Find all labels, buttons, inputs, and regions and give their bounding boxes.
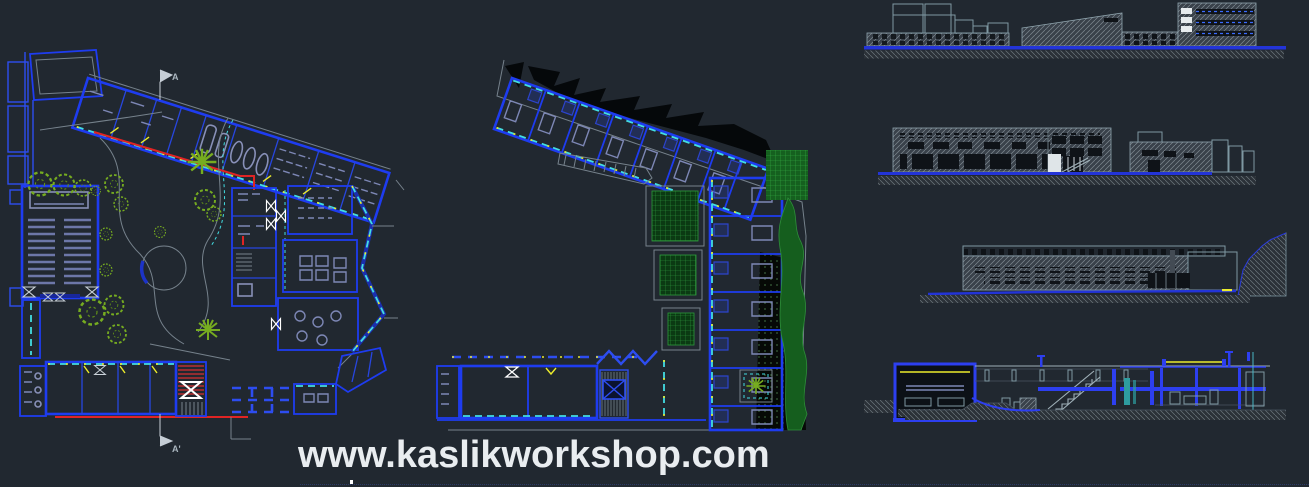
elevation-1 [864, 3, 1286, 59]
elevations [864, 3, 1286, 422]
cad-sheet: A A' [0, 0, 1309, 487]
ground-line-1 [864, 46, 1286, 50]
roof-posts [985, 370, 1128, 381]
section-label-bottom: A' [172, 444, 181, 454]
bottom-dotted-line [300, 484, 1309, 485]
stair-red [176, 362, 206, 416]
east-classrooms [272, 180, 405, 368]
tower-outlines [893, 4, 1008, 33]
section-label-top: A [172, 72, 179, 82]
hillside [1238, 233, 1286, 296]
bottom-dot [350, 480, 353, 484]
service-wing [437, 357, 706, 420]
south-rooms [46, 362, 248, 417]
section-marker-a-prime: A' [160, 414, 181, 454]
watermark: www.kaslikworkshop.com [298, 436, 770, 474]
west-corridor [20, 293, 65, 416]
upper-floor-plan [437, 60, 808, 430]
ground-line-3 [928, 291, 1236, 294]
core-rooms [232, 188, 285, 306]
ground-floor-plan: A A' [8, 50, 404, 454]
entrance-door [1048, 154, 1061, 172]
canopy-zigzag [597, 351, 657, 364]
round-tables [295, 311, 341, 345]
section-stairs [1050, 379, 1092, 414]
se-connector [336, 348, 386, 392]
ground-line-2 [878, 172, 1212, 175]
se-rooms [294, 384, 336, 414]
roof-garden [766, 150, 808, 200]
section-a [864, 351, 1286, 422]
seat-rows [28, 220, 92, 283]
balcony-white [1181, 8, 1192, 14]
section-marker-a: A [160, 70, 179, 100]
auditorium [22, 186, 98, 298]
interior-fixtures [1170, 390, 1218, 404]
elevation-3 [920, 233, 1286, 303]
palm-tree [188, 149, 217, 174]
cad-canvas: A A' [0, 0, 1309, 487]
elevation-2 [878, 128, 1256, 185]
trees [29, 149, 222, 343]
ramp-corridor [232, 388, 292, 412]
stair-core [600, 370, 628, 418]
